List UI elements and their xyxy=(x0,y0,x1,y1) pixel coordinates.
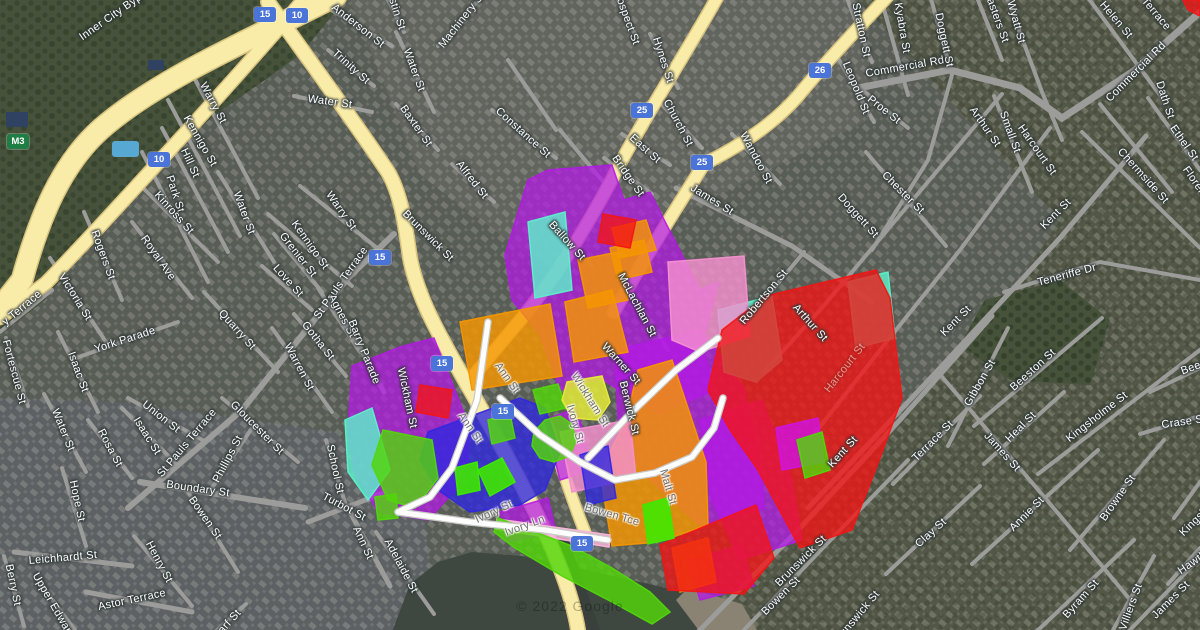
zoning-polygon-green2 xyxy=(455,462,480,495)
zoning-polygon-green2 xyxy=(643,498,674,544)
map-attribution: © 2022 Google xyxy=(500,598,640,614)
zoning-polygon-red xyxy=(416,385,452,418)
map-canvas[interactable]: 151010M326252515151515 Inner City Bypass… xyxy=(0,0,1200,630)
zoning-polygon-green xyxy=(375,494,398,520)
solar-panels xyxy=(148,60,164,70)
satellite-map xyxy=(0,0,1200,630)
zoning-polygon-teal xyxy=(528,212,572,298)
zoning-polygon-yellow xyxy=(562,376,610,420)
solar-panels xyxy=(6,112,28,127)
zoning-polygon-red xyxy=(598,214,636,248)
zoning-polygon-green xyxy=(488,414,515,444)
swimming-pool xyxy=(112,141,139,157)
